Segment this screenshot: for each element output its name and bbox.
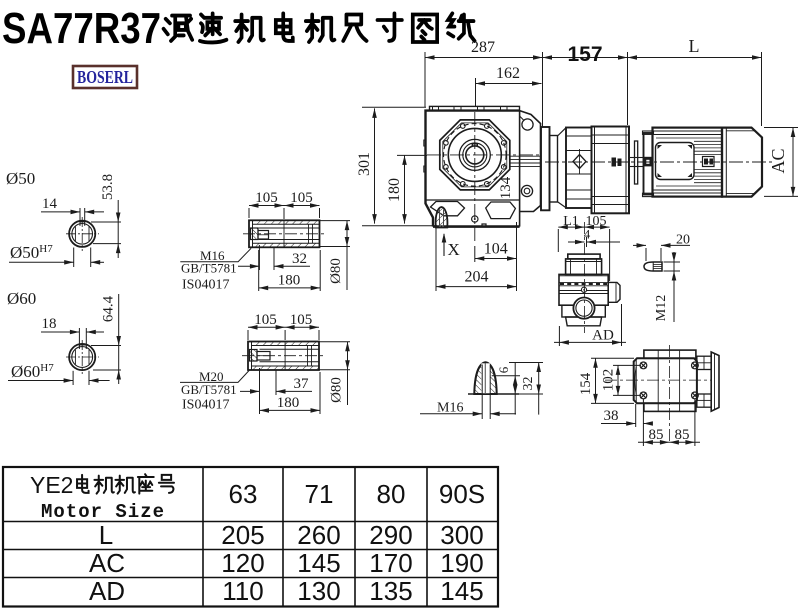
svg-text:M12: M12 <box>654 295 669 321</box>
svg-text:GB/T5781: GB/T5781 <box>181 382 237 397</box>
svg-text:6: 6 <box>496 366 511 373</box>
svg-text:145: 145 <box>297 548 340 578</box>
svg-text:157: 157 <box>567 43 602 66</box>
svg-text:Ø50: Ø50 <box>6 169 35 188</box>
svg-text:301: 301 <box>356 152 373 176</box>
svg-text:110: 110 <box>222 576 263 606</box>
svg-text:38: 38 <box>604 408 619 424</box>
svg-text:Ø60: Ø60 <box>7 289 36 308</box>
svg-text:300: 300 <box>440 520 483 550</box>
svg-text:135: 135 <box>369 576 412 606</box>
svg-text:290: 290 <box>369 520 412 550</box>
svg-text:71: 71 <box>305 479 334 509</box>
svg-text:GB/T5781: GB/T5781 <box>181 261 237 276</box>
svg-text:AD: AD <box>592 328 614 344</box>
svg-text:BOSERL: BOSERL <box>77 67 133 87</box>
svg-text:32: 32 <box>521 377 536 391</box>
svg-text:102: 102 <box>601 369 617 392</box>
svg-text:Ø80: Ø80 <box>329 377 345 403</box>
svg-text:64.4: 64.4 <box>101 295 117 322</box>
svg-text:80: 80 <box>377 479 406 509</box>
svg-text:130: 130 <box>297 576 340 606</box>
svg-text:162: 162 <box>496 65 520 82</box>
svg-text:AD: AD <box>89 576 125 606</box>
svg-text:205: 205 <box>221 520 264 550</box>
svg-text:90S: 90S <box>439 479 485 509</box>
svg-text:260: 260 <box>297 520 340 550</box>
svg-text:170: 170 <box>369 548 412 578</box>
svg-text:SA77R37: SA77R37 <box>2 4 161 53</box>
svg-text:120: 120 <box>221 548 264 578</box>
svg-text:180: 180 <box>277 395 300 411</box>
svg-text:Ø80: Ø80 <box>328 258 344 284</box>
svg-text:145: 145 <box>440 576 483 606</box>
svg-text:X: X <box>448 240 460 259</box>
svg-text:287: 287 <box>471 39 495 56</box>
svg-text:190: 190 <box>440 548 483 578</box>
svg-text:85: 85 <box>675 427 690 443</box>
svg-text:IS04017: IS04017 <box>182 278 229 293</box>
svg-text:85: 85 <box>649 427 664 443</box>
svg-text:L: L <box>99 520 113 550</box>
svg-text:105: 105 <box>254 312 277 328</box>
svg-text:180: 180 <box>278 273 301 289</box>
svg-text:Ø50H7: Ø50H7 <box>10 243 53 262</box>
svg-text:L1: L1 <box>563 214 579 229</box>
svg-text:18: 18 <box>42 316 57 332</box>
svg-text:37: 37 <box>294 376 310 392</box>
svg-text:20: 20 <box>676 233 690 248</box>
svg-text:YE2: YE2 <box>30 472 73 498</box>
svg-text:204: 204 <box>465 269 489 286</box>
svg-text:104: 104 <box>484 241 508 258</box>
svg-text:105: 105 <box>290 190 313 206</box>
svg-text:63: 63 <box>229 479 258 509</box>
svg-text:AC: AC <box>89 548 125 578</box>
svg-text:IS04017: IS04017 <box>182 398 229 413</box>
svg-text:105: 105 <box>255 190 278 206</box>
svg-text:Ø60H7: Ø60H7 <box>11 362 54 381</box>
svg-text:AC: AC <box>768 148 788 173</box>
svg-text:14: 14 <box>42 196 58 212</box>
svg-text:134: 134 <box>498 176 514 199</box>
svg-text:105: 105 <box>290 312 313 328</box>
svg-text:M16: M16 <box>437 401 463 416</box>
svg-text:53.8: 53.8 <box>100 174 116 200</box>
svg-text:L: L <box>689 36 700 56</box>
svg-text:32: 32 <box>292 251 307 267</box>
svg-text:180: 180 <box>386 178 403 202</box>
svg-text:154: 154 <box>578 372 594 395</box>
